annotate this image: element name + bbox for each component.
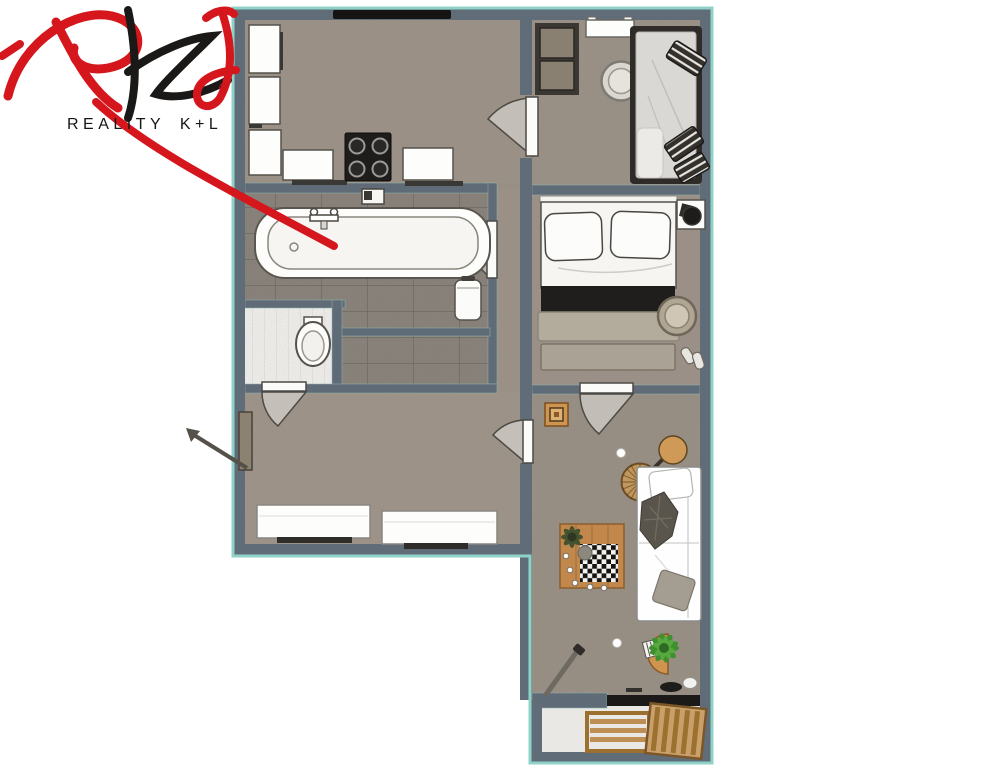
black-runner (541, 286, 675, 312)
counter-left (283, 150, 333, 180)
bath-right-wall-upper (488, 183, 497, 222)
fan-side-table (677, 200, 705, 229)
balcony-left-wall (530, 700, 542, 755)
burner (350, 162, 365, 177)
table-plant (561, 526, 583, 548)
hall-bottom-wall (233, 544, 532, 556)
sideboard-right (382, 511, 497, 549)
burner (373, 139, 388, 154)
bath-inner-wall (340, 328, 490, 336)
wooden-stool (545, 403, 568, 426)
entrance-door (186, 412, 252, 470)
pillow-left (544, 212, 603, 261)
tall-cabinet-3 (249, 130, 281, 175)
bowl (578, 546, 592, 560)
wall-shelf (586, 17, 634, 37)
pillow-right (610, 211, 671, 259)
floor-dot (617, 449, 626, 458)
single-bed (630, 26, 710, 184)
entrance-door-arrow (186, 428, 200, 442)
tall-cabinet-2 (249, 77, 280, 124)
double-bed (538, 196, 679, 370)
foot-bench (541, 344, 675, 370)
bedrooms-divider-wall (532, 185, 700, 195)
hall-living-door-leaf (523, 420, 533, 463)
round-side-table (658, 297, 696, 335)
top-wall (233, 8, 712, 20)
burner (373, 162, 388, 177)
sideboard-left (257, 505, 370, 543)
counter-right (403, 148, 453, 180)
black-bowl (660, 682, 682, 692)
balcony-furniture (587, 703, 706, 759)
bathtub (255, 208, 490, 278)
center-wall-a (520, 8, 532, 95)
fan-icon (683, 207, 701, 225)
floor-dot (613, 639, 622, 648)
wc-top-wall (245, 300, 345, 308)
laundry-bin (455, 276, 481, 320)
main-bedroom-door-leaf (580, 383, 633, 393)
tall-cabinet-1 (249, 25, 280, 73)
white-bowl (683, 678, 697, 689)
guitar-head (659, 436, 687, 464)
burner (350, 139, 365, 154)
left-wall (233, 8, 245, 556)
wc-door-leaf (262, 382, 306, 391)
hall-top-wall-a (245, 384, 262, 393)
cooktop (345, 133, 391, 181)
wall-sink (362, 189, 384, 204)
wooden-lounger (587, 703, 706, 759)
wc-right-wall (332, 300, 342, 392)
center-wall-b (520, 158, 532, 420)
floor-plan-page: ® REALITY K+L (0, 0, 1000, 775)
floor-plan-drawing (0, 0, 1000, 775)
kitchen-window (333, 10, 451, 19)
chess-coffee-table (560, 524, 624, 591)
kitchen-door-leaf (526, 97, 538, 156)
bedroom-living-wall-a (532, 385, 580, 394)
living-balcony-wall (532, 693, 607, 708)
wardrobe (535, 23, 579, 95)
entrance-door-leaf (239, 412, 252, 470)
bedroom-living-wall-b (633, 385, 700, 394)
hall-top-wall-b (306, 384, 497, 393)
sofa (637, 467, 701, 621)
